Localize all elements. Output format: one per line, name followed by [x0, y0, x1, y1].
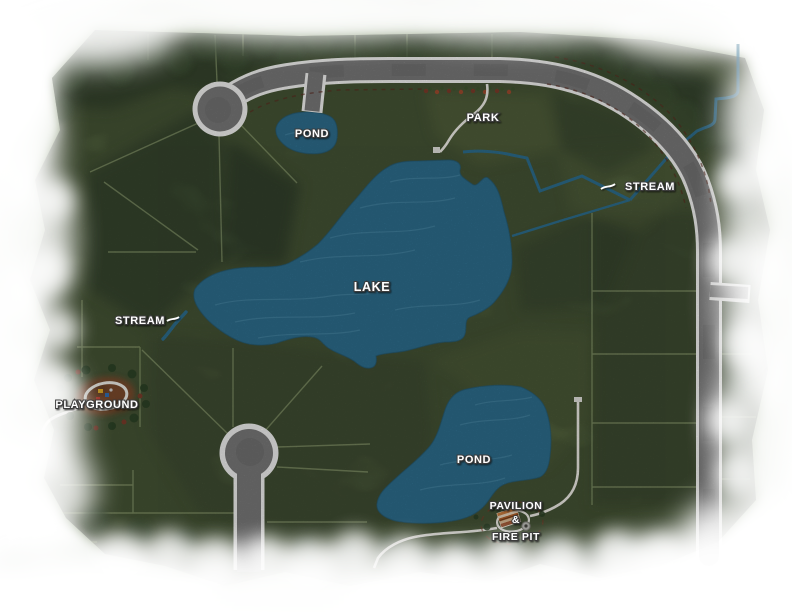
lake-label: LAKE — [354, 280, 390, 294]
playground-label: PLAYGROUND — [55, 399, 138, 411]
park-label: PARK — [467, 112, 500, 124]
pavilion-label-line2: & — [512, 514, 520, 526]
stream-upper-label: STREAM — [625, 181, 675, 193]
grain-texture — [0, 0, 792, 612]
pavilion-label-line3: FIRE PIT — [492, 531, 540, 543]
site-plan-map: POND PARK STREAM LAKE STREAM PLAYGROUND … — [0, 0, 792, 612]
site-map-canvas: POND PARK STREAM LAKE STREAM PLAYGROUND … — [0, 0, 792, 612]
stream-lower-label: STREAM — [115, 315, 165, 327]
pond-lower-label: POND — [457, 454, 491, 466]
pond-upper-label: POND — [295, 128, 329, 140]
pavilion-label-line1: PAVILION — [490, 500, 543, 512]
